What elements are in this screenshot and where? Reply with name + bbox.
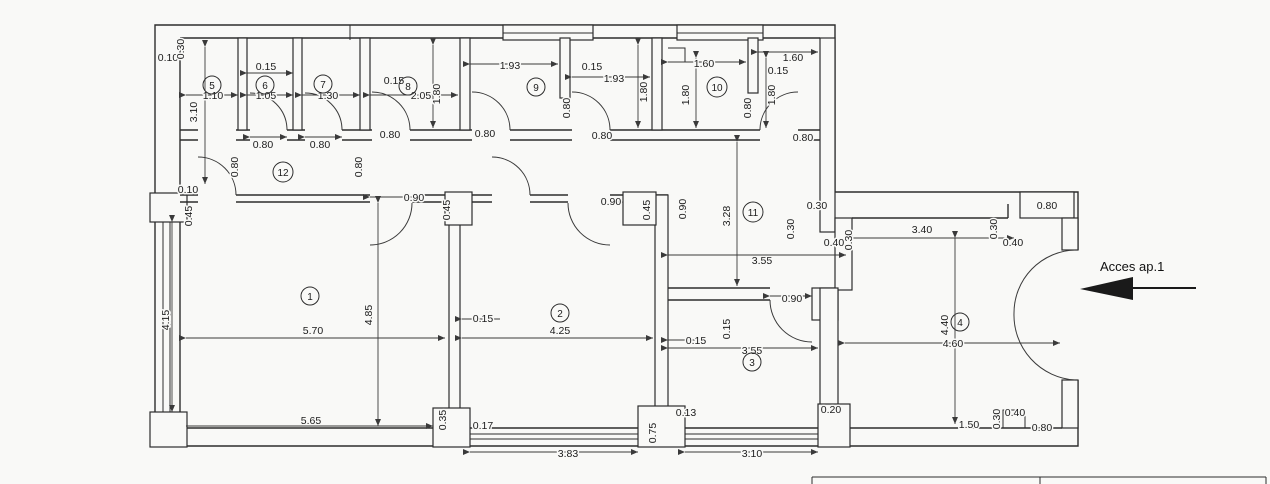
dim-label: 0.80 [380, 129, 401, 141]
dim-label: 0.13 [676, 407, 697, 419]
dim-label: 1.60 [783, 52, 804, 64]
floor-plan-canvas: 0.10 0.30 3.10 1.10 0.15 1.05 1.30 0.15 … [0, 0, 1270, 484]
dim-label: 4.85 [363, 305, 375, 326]
dim-label: 4.25 [550, 325, 571, 337]
room-number-11: 11 [748, 208, 759, 219]
wall-jog-room4 [835, 218, 852, 290]
dim-label: 0.40 [824, 237, 845, 249]
dim-label: 1.60 [694, 58, 715, 70]
dim-label: 0.45 [183, 206, 195, 227]
dim-label: 0.80 [253, 139, 274, 151]
dim-label: 0.20 [821, 404, 842, 416]
door-arc-room3 [770, 300, 812, 342]
room-number-10: 10 [711, 83, 723, 94]
dim-label: 0.17 [473, 420, 494, 432]
dim-label: 0.15 [686, 335, 707, 347]
door-arc-room1 [370, 203, 412, 245]
dim-label: 0.30 [988, 219, 1000, 240]
left-sill-block-bottom [150, 412, 187, 447]
dim-label: 0.15 [384, 75, 405, 87]
dim-label: 0.30 [843, 230, 855, 251]
entry-wall-bottom [1062, 380, 1078, 428]
dim-label: 1.80 [766, 85, 778, 106]
dim-label: 4.40 [939, 315, 951, 336]
access-annotation: Acces ap.1 [1080, 259, 1196, 300]
dim-label: 3.40 [912, 224, 933, 236]
dim-label: 3.83 [558, 448, 579, 460]
partition-9-10 [652, 38, 662, 130]
access-arrow-icon [1080, 277, 1133, 300]
dim-label: 5.65 [301, 415, 322, 427]
scanned-floor-plan-page: 0.10 0.30 3.10 1.10 0.15 1.05 1.30 0.15 … [0, 0, 1270, 484]
entry-door-leaf-bottom [1014, 313, 1075, 380]
left-sill-block-top [150, 193, 187, 222]
room-number-7: 7 [320, 80, 326, 91]
dim-label: 0.90 [404, 192, 425, 204]
title-block-partial [812, 477, 1266, 484]
dim-label: 0.10 [178, 184, 199, 196]
interior-walls [180, 38, 1078, 447]
door-arc-room9b [572, 92, 610, 130]
door-arc-room2 [568, 203, 610, 245]
dim-label: 0.80 [353, 157, 365, 178]
dim-label: 0.80 [561, 98, 573, 119]
dim-label: 5.70 [303, 325, 324, 337]
dim-label: 0.80 [310, 139, 331, 151]
dim-label: 0.45 [641, 200, 653, 221]
dim-label: 0.30 [807, 200, 828, 212]
dim-label: 0.90 [782, 293, 803, 305]
dim-label: 0.30 [991, 409, 1003, 430]
dim-label: 3.28 [721, 206, 733, 227]
dim-label: 0.80 [793, 132, 814, 144]
dim-label: 0.80 [1037, 200, 1058, 212]
room-number-3: 3 [749, 358, 755, 369]
dimension-lines [172, 45, 1060, 452]
room-number-12: 12 [277, 168, 289, 179]
door-arc-room9a [472, 92, 510, 130]
dim-label: 0.80 [475, 128, 496, 140]
dim-label: 0.80 [592, 130, 613, 142]
partition-8-9 [460, 38, 470, 130]
entry-wall-top [1062, 218, 1078, 250]
wall-room3-room4 [820, 288, 838, 408]
room-number-8: 8 [405, 82, 411, 93]
door-arc-corridor12-right [492, 157, 530, 195]
partition-6-7 [293, 38, 302, 130]
dim-label: 1.93 [500, 60, 521, 72]
dim-label: 0.90 [677, 199, 689, 220]
wall-room2-room3 [655, 195, 668, 430]
dim-label: 0.15 [721, 319, 733, 340]
dim-label: 1.93 [604, 73, 625, 85]
entry-door-leaf-top [1014, 250, 1075, 313]
dim-label: 1.80 [431, 84, 443, 105]
room-number-2: 2 [557, 309, 563, 320]
dim-label: 0.15 [768, 65, 789, 77]
wall-room1-room2 [449, 203, 460, 428]
dim-label: 0.80 [1032, 422, 1053, 434]
partition-5-6 [238, 38, 247, 130]
partition-9-stub [560, 38, 570, 98]
door-arc-room8 [372, 92, 410, 130]
dim-label: 0.75 [647, 423, 659, 444]
dim-label: 1.80 [680, 85, 692, 106]
dim-label: 0.45 [441, 200, 453, 221]
dim-label: 4.15 [160, 310, 172, 331]
dim-label: 3.55 [752, 255, 773, 267]
dim-label: 0.30 [175, 39, 187, 60]
room-number-9: 9 [533, 83, 539, 94]
dim-label: 3.55 [742, 345, 763, 357]
dim-label: 2.05 [411, 90, 432, 102]
partition-10-stub [748, 38, 758, 93]
partition-7-8 [360, 38, 370, 130]
dim-label: 0.35 [437, 410, 449, 431]
dim-label: 4.60 [943, 338, 964, 350]
dim-label: 0.15 [473, 313, 494, 325]
dim-label: 0.80 [229, 157, 241, 178]
dim-label: 0.40 [1005, 407, 1026, 419]
dim-label: 1.50 [959, 419, 980, 431]
dim-label: 3.10 [742, 448, 763, 460]
dim-label: 1.80 [638, 82, 650, 103]
dim-label: 0.40 [1003, 237, 1024, 249]
dim-label: 0.30 [785, 219, 797, 240]
dim-label: 0.80 [742, 98, 754, 119]
dim-label: 0.90 [601, 196, 622, 208]
room-number-4: 4 [957, 318, 963, 329]
exterior-walls [150, 25, 1078, 447]
dim-label: 0.15 [256, 61, 277, 73]
dim-label: 3.10 [188, 102, 200, 123]
room-number-6: 6 [262, 81, 268, 92]
room-number-1: 1 [307, 292, 313, 303]
access-label: Acces ap.1 [1100, 259, 1164, 274]
room-number-5: 5 [209, 81, 215, 92]
dim-label: 0.15 [582, 61, 603, 73]
